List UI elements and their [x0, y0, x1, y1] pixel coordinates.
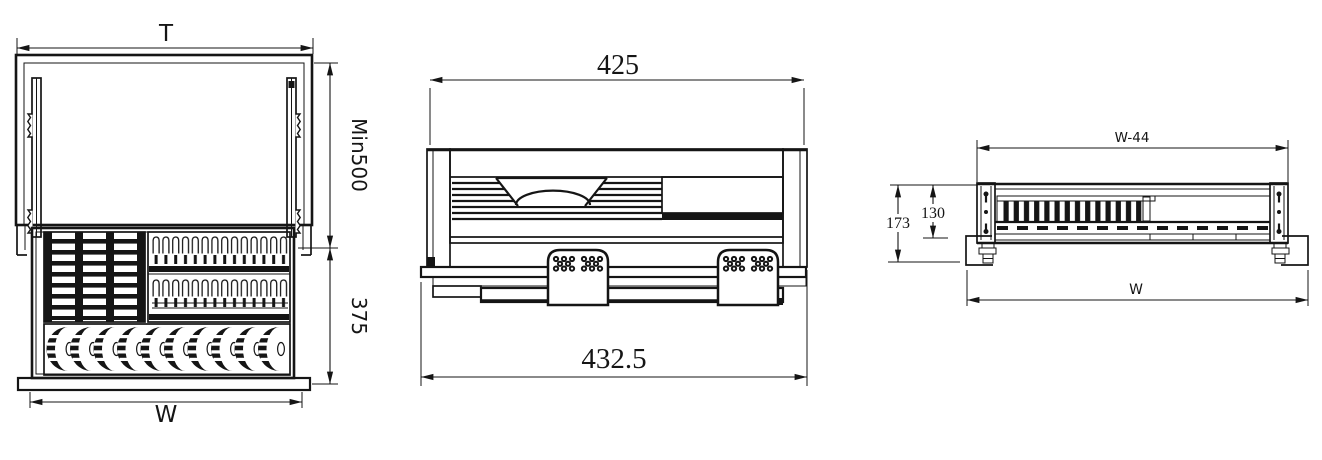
dim-overall-height-173: 173 [886, 185, 977, 262]
dim-basket-depth-375: 375 [312, 248, 371, 384]
side-tray [662, 177, 783, 213]
dim-label-173: 173 [886, 215, 910, 232]
knife-slot-rows [148, 232, 290, 322]
dim-label-130: 130 [921, 205, 945, 222]
front-view: 425 [421, 50, 807, 386]
slide-rail-left [28, 78, 41, 237]
foot-right [1272, 236, 1308, 265]
dim-label-T: T [158, 21, 174, 47]
end-panel-right [1270, 183, 1288, 243]
cabinet-outline [16, 55, 312, 255]
comb-rack [995, 196, 1270, 222]
bracket-right [718, 250, 778, 305]
drawing-canvas: T [0, 0, 1322, 460]
end-panel-left [977, 183, 995, 243]
divider-compartment [44, 232, 145, 322]
striped-band [452, 178, 662, 219]
dim-opening-width-W: W [30, 392, 302, 428]
dim-label-425: 425 [597, 50, 639, 81]
bracket-left [548, 250, 608, 305]
dim-label-W-side-view: W [1129, 282, 1143, 298]
dim-overall-width-W-side: W [967, 270, 1308, 306]
foot-left [966, 236, 996, 265]
dim-label-min500: Min500 [347, 118, 371, 192]
dim-label-375: 375 [347, 297, 371, 335]
dim-cabinet-width-T: T [17, 21, 313, 54]
slide-rail-right [287, 78, 300, 237]
technical-drawing-sheet: T [0, 0, 1322, 460]
plate-holder-strip [44, 324, 290, 375]
dim-body-width-425: 425 [430, 50, 804, 145]
dim-label-w44: W-44 [1115, 130, 1150, 146]
dim-inner-width-w44: W-44 [977, 130, 1288, 182]
side-view: W-44 [886, 130, 1308, 306]
dim-label-W-top-view: W [155, 402, 178, 428]
basket [32, 228, 294, 378]
dim-depth-min500: Min500 [298, 63, 371, 248]
side-body [977, 183, 1288, 243]
top-view: T [16, 21, 371, 428]
front-panel [18, 378, 310, 390]
dim-label-432-5: 432.5 [581, 343, 646, 375]
dim-body-height-130: 130 [921, 185, 948, 238]
